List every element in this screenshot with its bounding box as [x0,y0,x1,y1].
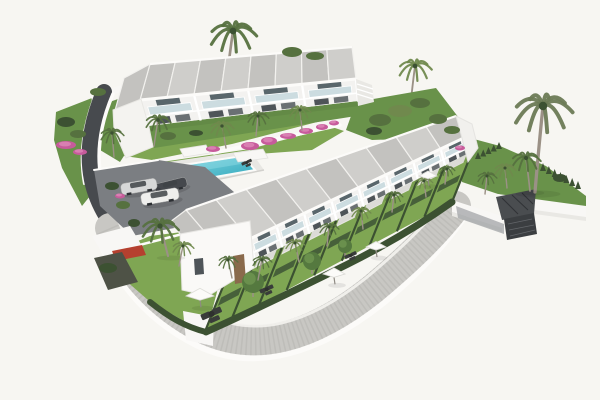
tree-canopy-highlight [244,273,256,285]
shrub [282,47,302,57]
shrub [369,114,391,126]
bougainvillea [280,133,296,139]
shrub [128,219,140,227]
bougainvillea [299,128,313,134]
tree-canopy-highlight [339,240,347,248]
flower-highlight [263,138,273,143]
flower-highlight [244,143,255,148]
palm-crown-core [157,223,162,228]
parasol-shadow [192,306,214,311]
flower-highlight [59,142,71,147]
bougainvillea [115,194,125,199]
parasol-shadow [328,283,346,288]
bougainvillea [261,137,277,145]
parasol-shadow [371,256,387,261]
palm-crown-core [230,28,237,35]
shrub [90,88,106,96]
shrub [366,127,382,135]
shrub [429,114,447,124]
palm-crown-core [156,118,160,122]
shrub [57,117,75,127]
bougainvillea [316,124,328,130]
palm-crown-core [446,168,449,171]
palm-crown-core [181,244,184,247]
flower-highlight [330,121,336,124]
bougainvillea [241,142,259,150]
end-wall-window [194,258,204,275]
bougainvillea [455,146,465,151]
flower-highlight [208,146,216,150]
flower-highlight [317,124,324,128]
cypress-shrub [575,181,581,189]
shrub [116,201,130,209]
shrub [410,98,430,108]
palm-shadow [522,191,545,196]
architectural-render: Aerial 3D architectural rendering of a w… [0,0,600,400]
palm-crown-core [328,226,331,229]
flower-highlight [456,146,462,149]
shrub [105,182,119,190]
roof-panel [221,56,251,93]
roof-panel [327,47,356,82]
palm-crown-core [261,259,264,262]
render-canvas: Aerial 3D architectural rendering of a w… [0,0,600,400]
palm-crown-core [256,114,259,117]
palm-crown-core [486,175,489,178]
bougainvillea [206,146,220,152]
shrub [388,105,412,117]
palm-crown-core [298,108,301,111]
palm-crown-core [539,102,547,110]
flower-highlight [116,194,122,197]
roof-pergola-terrace [356,79,374,106]
palm-crown-core [393,194,396,197]
palm-crown-core [524,156,528,160]
palm-crown-core [294,242,297,245]
bougainvillea [73,149,87,155]
shrub [444,126,460,134]
block-a-townhouses [113,47,374,158]
bougainvillea [329,121,339,126]
shrub [189,130,203,136]
palm-crown-core [227,259,230,262]
flower-highlight [75,149,83,153]
palm-crown-core [360,210,363,213]
roof-panel [248,53,276,89]
flower-highlight [282,133,292,137]
tree-canopy-highlight [304,253,314,263]
shrub [70,130,86,138]
parasol-shadow [424,184,438,189]
shrub [99,263,117,273]
palm-crown-core [110,131,113,134]
shrub [160,132,176,140]
palm-crown-core [220,124,223,127]
shrub [306,52,324,60]
cypress-shrub [569,178,575,186]
palm-crown-core [423,180,426,183]
palm-crown-core [503,166,506,169]
bougainvillea [56,141,76,149]
palm-crown-core [413,64,418,69]
